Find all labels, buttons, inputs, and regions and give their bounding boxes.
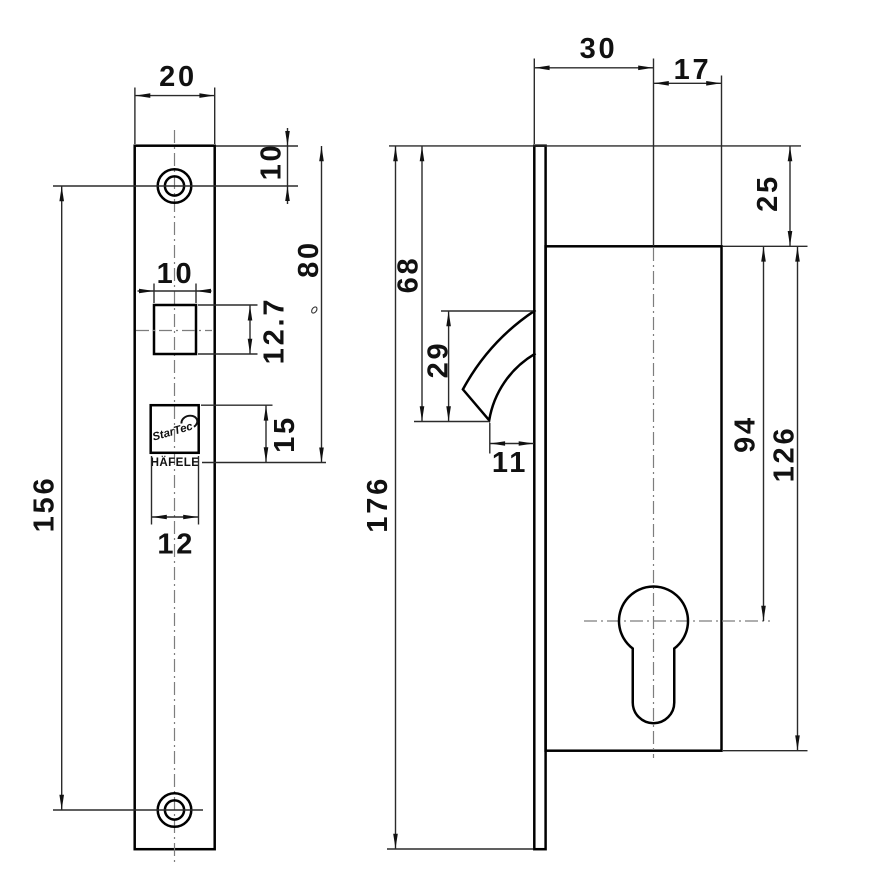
- svg-text:176: 176: [362, 476, 394, 533]
- svg-text:20: 20: [159, 61, 197, 93]
- svg-text:29: 29: [422, 341, 454, 379]
- svg-text:126: 126: [769, 426, 801, 483]
- svg-text:11: 11: [492, 447, 528, 479]
- svg-text:68: 68: [393, 256, 425, 294]
- svg-text:10: 10: [157, 258, 195, 290]
- svg-text:17: 17: [674, 54, 712, 86]
- svg-text:HÄFELE: HÄFELE: [151, 456, 200, 469]
- svg-text:94: 94: [730, 415, 762, 453]
- svg-text:12: 12: [157, 528, 195, 560]
- svg-text:80: 80: [293, 240, 325, 278]
- svg-text:30: 30: [580, 33, 618, 65]
- svg-text:25: 25: [752, 174, 784, 212]
- svg-text:156: 156: [29, 476, 61, 533]
- svg-text:12.7: 12.7: [259, 297, 291, 365]
- svg-text:15: 15: [269, 415, 301, 453]
- svg-text:10: 10: [256, 143, 288, 181]
